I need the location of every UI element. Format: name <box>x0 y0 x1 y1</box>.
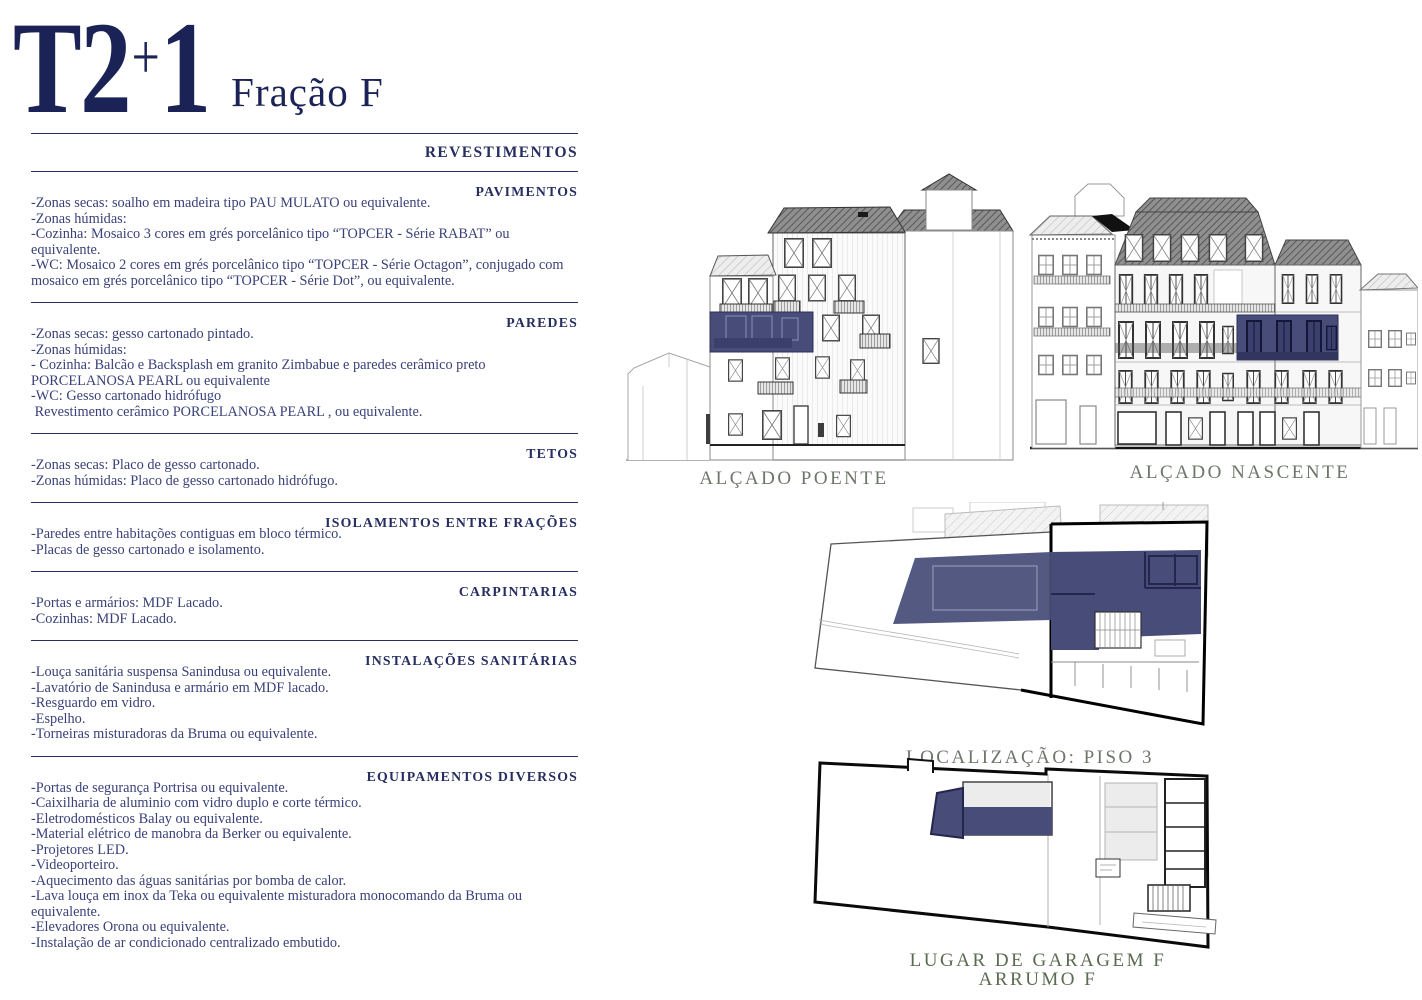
spec-line: -Torneiras misturadoras da Bruma ou equi… <box>31 727 578 743</box>
spec-line: -Aquecimento das águas sanitárias por bo… <box>31 874 578 890</box>
spec-line: -Lava louça em inox da Teka ou equivalen… <box>31 889 578 920</box>
garagem-label: LUGAR DE GARAGEM F ARRUMO F <box>790 951 1286 989</box>
spec-sections: PAVIMENTOS -Zonas secas: soalho em madei… <box>31 172 578 964</box>
garagem-plan-drawing <box>790 757 1245 952</box>
section-body: -Zonas secas: soalho em madeira tipo PAU… <box>31 196 578 289</box>
spec-line: -Elevadores Orona ou equivalente. <box>31 920 578 936</box>
spec-line: -Resguardo em vidro. <box>31 696 578 712</box>
spec-line: Revestimento cerâmico PORCELANOSA PEARL … <box>31 405 578 421</box>
section-body: -Zonas secas: Placo de gesso cartonado.-… <box>31 458 578 489</box>
alcado-poente-label: ALÇADO POENTE <box>598 468 990 490</box>
spec-sheet-page: T2+1 Fração F REVESTIMENTOS PAVIMENTOS -… <box>0 0 1422 1000</box>
alcado-nascente-label: ALÇADO NASCENTE <box>1045 462 1422 484</box>
specification-column: REVESTIMENTOS PAVIMENTOS -Zonas secas: s… <box>31 133 578 964</box>
alcado-nascente-drawing <box>1028 162 1418 462</box>
spec-line: - Cozinha: Balcão e Backsplash em granit… <box>31 358 578 389</box>
spec-line: -Projetores LED. <box>31 843 578 859</box>
section-body: -Louça sanitária suspensa Sanindusa ou e… <box>31 665 578 743</box>
spec-line: -Lavatório de Sanindusa e armário em MDF… <box>31 681 578 697</box>
spec-line: -WC: Gesso cartonado hidrófugo <box>31 389 578 405</box>
spec-line: -Zonas secas: Placo de gesso cartonado. <box>31 458 578 474</box>
spec-line: -Zonas húmidas: <box>31 343 578 359</box>
spec-line: -Material elétrico de manobra da Berker … <box>31 827 578 843</box>
section-body: -Portas de segurança Portrisa ou equival… <box>31 781 578 952</box>
spec-line: -WC: Mosaico 2 cores em grés porcelânico… <box>31 258 578 289</box>
spec-section: CARPINTARIAS -Portas e armários: MDF Lac… <box>31 572 578 641</box>
spec-line: -Zonas secas: gesso cartonado pintado. <box>31 327 578 343</box>
spec-line: -Placas de gesso cartonado e isolamento. <box>31 543 578 559</box>
section-body: -Paredes entre habitações contiguas em b… <box>31 527 578 558</box>
spec-heading: REVESTIMENTOS <box>31 144 578 162</box>
spec-section: INSTALAÇÕES SANITÁRIAS -Louça sanitária … <box>31 641 578 757</box>
alcado-poente-drawing <box>622 168 1014 464</box>
section-body: -Portas e armários: MDF Lacado.-Cozinhas… <box>31 596 578 627</box>
fraction-label: Fração F <box>231 68 384 116</box>
spec-section: EQUIPAMENTOS DIVERSOS -Portas de seguran… <box>31 757 578 965</box>
fraction-highlight-garagem <box>931 782 1052 838</box>
spec-section: TETOS -Zonas secas: Placo de gesso carto… <box>31 434 578 503</box>
spec-line: -Instalação de ar condicionado centraliz… <box>31 936 578 952</box>
unit-typology: T2+1 <box>13 2 210 134</box>
spec-line: -Cozinha: Mosaico 3 cores em grés porcel… <box>31 227 578 258</box>
spec-line: -Videoporteiro. <box>31 858 578 874</box>
unit-title: T2+1 Fração F <box>13 2 384 134</box>
garagem-label-line2: ARRUMO F <box>790 970 1286 989</box>
spec-section: ISOLAMENTOS ENTRE FRAÇÕES -Paredes entre… <box>31 503 578 572</box>
spec-line: -Cozinhas: MDF Lacado. <box>31 612 578 628</box>
spec-line: -Espelho. <box>31 712 578 728</box>
garagem-label-line1: LUGAR DE GARAGEM F <box>790 951 1286 970</box>
spec-line: -Caixilharia de aluminio com vidro duplo… <box>31 796 578 812</box>
spec-section: PAREDES -Zonas secas: gesso cartonado pi… <box>31 303 578 434</box>
spec-line: -Zonas húmidas: Placo de gesso cartonado… <box>31 474 578 490</box>
spec-section: PAVIMENTOS -Zonas secas: soalho em madei… <box>31 172 578 303</box>
piso3-plan-drawing <box>795 502 1215 744</box>
divider <box>31 133 578 134</box>
spec-line: -Zonas húmidas: <box>31 212 578 228</box>
plus-sign: + <box>132 25 159 89</box>
fraction-highlight-nascente <box>1237 315 1338 360</box>
spec-line: -Eletrodomésticos Balay ou equivalente. <box>31 812 578 828</box>
section-body: -Zonas secas: gesso cartonado pintado.-Z… <box>31 327 578 420</box>
fraction-highlight-poente <box>710 312 813 352</box>
